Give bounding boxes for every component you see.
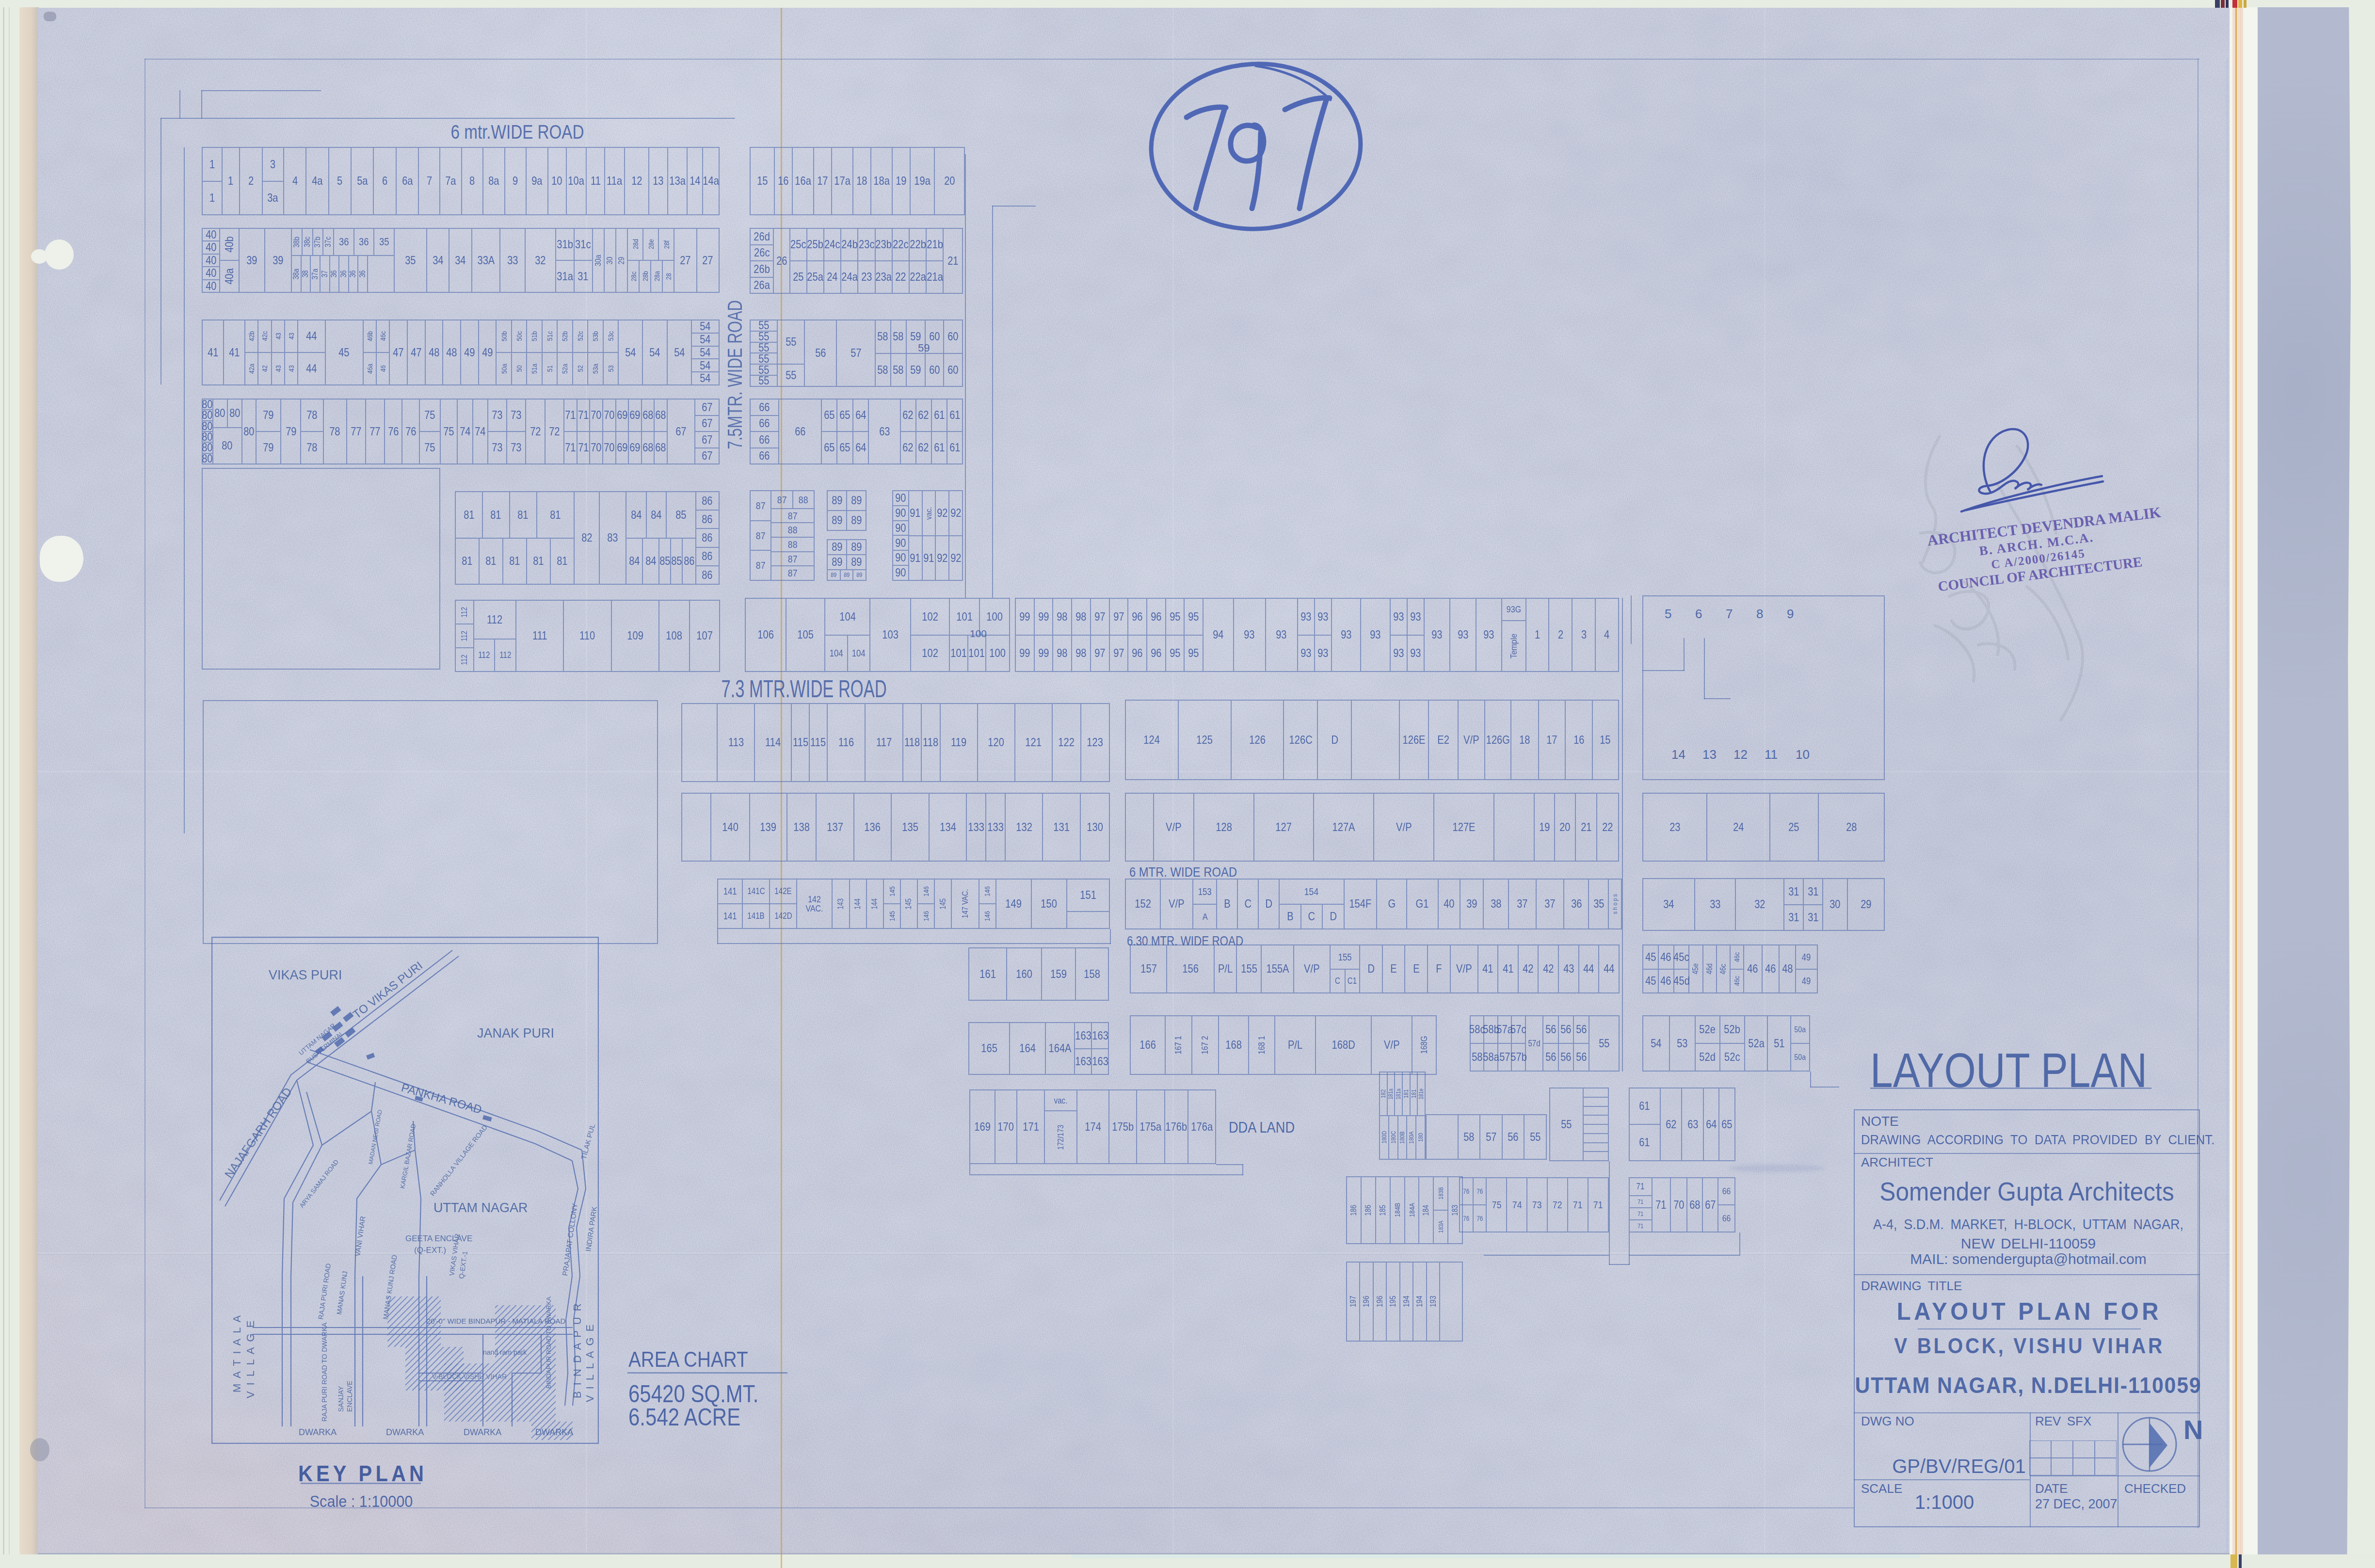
svg-text:Q-EXT.-1: Q-EXT.-1	[457, 1250, 469, 1279]
svg-text:M A T I A L A: M A T I A L A	[231, 1314, 243, 1392]
svg-text:DWARKA: DWARKA	[386, 1427, 424, 1437]
svg-text:DWARKA: DWARKA	[464, 1427, 501, 1437]
svg-text:RAJA PURI ROAD: RAJA PURI ROAD	[317, 1263, 332, 1320]
svg-text:PRAJAPAT COLLONY: PRAJAPAT COLLONY	[561, 1203, 579, 1277]
svg-text:V-BLOCK VISHU VIHAR: V-BLOCK VISHU VIHAR	[432, 1373, 507, 1380]
svg-text:ENCLAVE: ENCLAVE	[346, 1381, 353, 1412]
svg-text:NAJAFGARH ROAD: NAJAFGARH ROAD	[222, 1085, 294, 1181]
svg-text:TILAK PUL: TILAK PUL	[579, 1123, 596, 1160]
svg-text:DWARKA: DWARKA	[535, 1427, 573, 1437]
svg-text:INDIRA PARK: INDIRA PARK	[584, 1206, 598, 1252]
svg-text:MADAN NEGI ROAD: MADAN NEGI ROAD	[367, 1109, 384, 1165]
svg-text:GEETA ENCLAVE: GEETA ENCLAVE	[405, 1234, 472, 1243]
svg-text:UTTAM NAGAR: UTTAM NAGAR	[433, 1200, 528, 1215]
svg-text:ARYA SAMAJ ROAD: ARYA SAMAJ ROAD	[298, 1158, 340, 1209]
svg-text:PANKHA ROAD: PANKHA ROAD	[400, 1081, 483, 1116]
svg-text:nand ram park: nand ram park	[483, 1348, 527, 1356]
svg-text:JANAK PURI: JANAK PURI	[477, 1026, 554, 1040]
svg-text:V I L L A G E: V I L L A G E	[584, 1323, 596, 1402]
svg-text:BINDAPUR ROAD TO DWARKA: BINDAPUR ROAD TO DWARKA	[545, 1296, 552, 1389]
svg-text:B I N D A P U R: B I N D A P U R	[571, 1302, 583, 1398]
svg-text:(Q-EXT.): (Q-EXT.)	[414, 1246, 446, 1255]
svg-text:RAJA PURI ROAD TO DWARKA: RAJA PURI ROAD TO DWARKA	[321, 1322, 328, 1422]
svg-text:DWARKA: DWARKA	[299, 1427, 337, 1437]
svg-text:N: N	[2183, 1416, 2203, 1445]
svg-text:RANHOLLA VILLAGE ROAD: RANHOLLA VILLAGE ROAD	[429, 1123, 489, 1198]
svg-text:MANAS KUNJ: MANAS KUNJ	[335, 1271, 349, 1315]
svg-text:VIKAS PURI: VIKAS PURI	[269, 968, 342, 982]
svg-text:VANI VIHAR: VANI VIHAR	[353, 1216, 367, 1257]
svg-text:V I L L A G E: V I L L A G E	[244, 1319, 257, 1398]
svg-text:SANJAY: SANJAY	[337, 1386, 345, 1412]
